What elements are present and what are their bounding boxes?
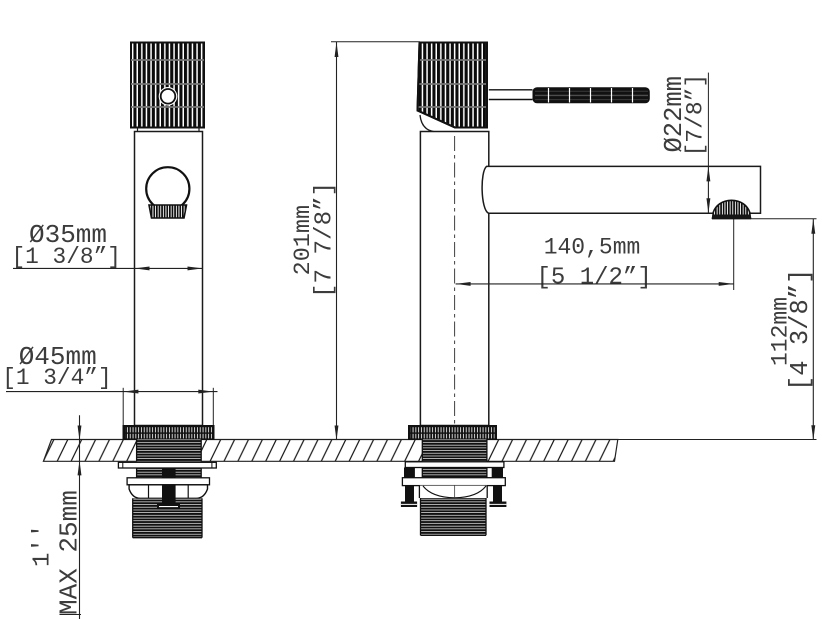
- svg-text:[7 7/8”]: [7 7/8”]: [312, 182, 339, 298]
- svg-text:[1 3/8”]: [1 3/8”]: [12, 244, 121, 270]
- svg-text:[7/8”]: [7/8”]: [683, 74, 709, 157]
- svg-text:[1 3/4”]: [1 3/4”]: [2, 365, 111, 391]
- svg-text:[5 1/2”]: [5 1/2”]: [537, 265, 652, 292]
- svg-text:[4 3/8”]: [4 3/8”]: [786, 269, 815, 391]
- svg-text:1′′: 1′′: [30, 524, 57, 567]
- svg-text:MAX 25mm: MAX 25mm: [55, 490, 85, 615]
- svg-text:140,5mm: 140,5mm: [544, 235, 641, 261]
